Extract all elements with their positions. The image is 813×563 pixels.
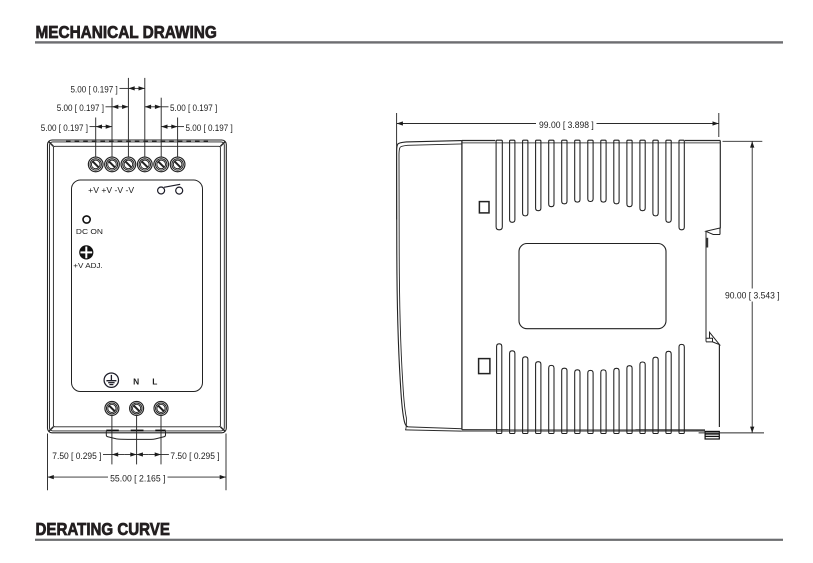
svg-text:+V +V -V -V: +V +V -V -V — [88, 186, 135, 195]
svg-text:DERATING CURVE: DERATING CURVE — [36, 519, 170, 539]
svg-text:5.00 [ 0.197 ]: 5.00 [ 0.197 ] — [57, 103, 104, 113]
svg-text:90.00 [ 3.543 ]: 90.00 [ 3.543 ] — [725, 291, 780, 301]
svg-text:5.00 [ 0.197 ]: 5.00 [ 0.197 ] — [41, 123, 88, 133]
svg-text:5.00 [ 0.197 ]: 5.00 [ 0.197 ] — [170, 103, 217, 113]
svg-text:99.00 [ 3.898 ]: 99.00 [ 3.898 ] — [539, 120, 594, 130]
svg-text:7.50 [ 0.295 ]: 7.50 [ 0.295 ] — [52, 451, 101, 461]
svg-text:L: L — [152, 377, 157, 387]
svg-text:7.50 [ 0.295 ]: 7.50 [ 0.295 ] — [170, 451, 219, 461]
svg-text:DC ON: DC ON — [76, 227, 103, 236]
svg-text:5.00 [ 0.197 ]: 5.00 [ 0.197 ] — [186, 123, 233, 133]
svg-text:MECHANICAL DRAWING: MECHANICAL DRAWING — [36, 22, 217, 42]
svg-text:55.00 [ 2.165 ]: 55.00 [ 2.165 ] — [110, 473, 165, 483]
svg-text:5.00 [ 0.197 ]: 5.00 [ 0.197 ] — [71, 85, 118, 95]
svg-text:N: N — [133, 377, 139, 387]
svg-text:+V ADJ.: +V ADJ. — [73, 261, 103, 270]
